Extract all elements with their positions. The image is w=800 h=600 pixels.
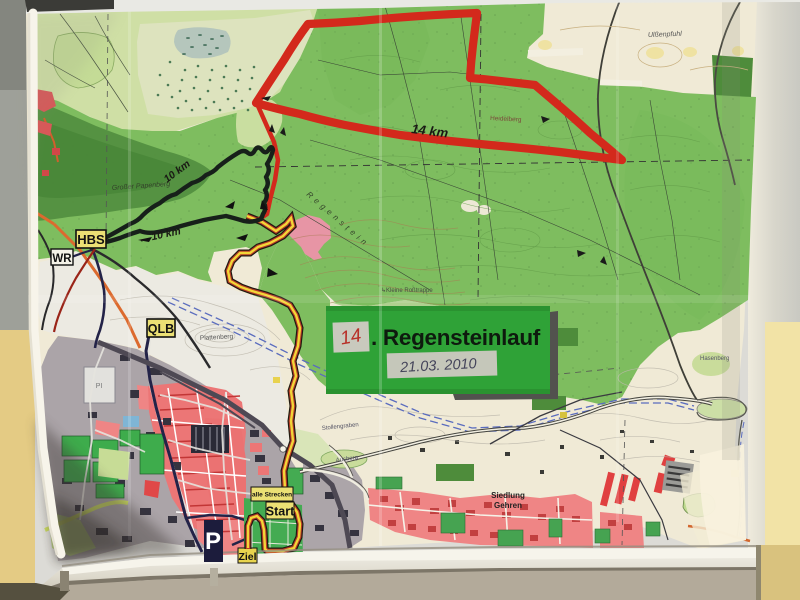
svg-text:↳Kleine Roßtrappe: ↳Kleine Roßtrappe <box>381 287 433 294</box>
svg-text:HBS: HBS <box>77 232 105 247</box>
svg-text:PI: PI <box>96 383 103 390</box>
svg-text:Ulßenpfuhl: Ulßenpfuhl <box>648 31 683 39</box>
svg-text:Start: Start <box>266 505 295 519</box>
svg-text:alle Strecken: alle Strecken <box>252 492 292 499</box>
svg-text:Gehren: Gehren <box>494 501 522 510</box>
svg-text:P: P <box>205 528 221 555</box>
svg-text:Ziel: Ziel <box>238 551 256 563</box>
svg-text:. Regensteinlauf: . Regensteinlauf <box>371 325 541 350</box>
svg-text:Siedlung: Siedlung <box>491 491 525 500</box>
svg-text:14: 14 <box>339 325 363 349</box>
svg-text:QLB: QLB <box>148 322 174 336</box>
svg-text:WR: WR <box>52 253 72 265</box>
